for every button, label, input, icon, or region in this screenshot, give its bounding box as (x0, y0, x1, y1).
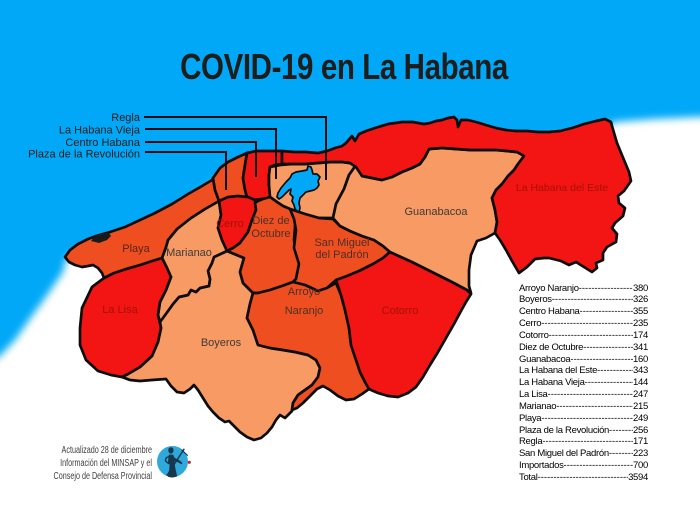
svg-text:Arroyo: Arroyo (288, 286, 320, 298)
svg-text:del Padrón: del Padrón (315, 249, 368, 261)
svg-text:Cerro: Cerro (216, 218, 244, 230)
svg-text:Centro Habana: Centro Habana (65, 137, 140, 149)
svg-text:Diez de: Diez de (252, 215, 289, 227)
svg-text:La Habana Vieja: La Habana Vieja (59, 125, 141, 137)
svg-text:Guanabacoa: Guanabacoa (405, 206, 469, 218)
svg-text:La Habana del Este: La Habana del Este (516, 182, 608, 194)
svg-text:Cotorro: Cotorro (382, 305, 419, 317)
svg-text:La Lisa: La Lisa (102, 304, 138, 316)
svg-text:Plaza de la Revolución: Plaza de la Revolución (28, 149, 140, 161)
svg-text:Marianao: Marianao (166, 247, 212, 259)
svg-text:Naranjo: Naranjo (285, 305, 324, 317)
svg-text:Playa: Playa (122, 243, 150, 255)
svg-text:Boyeros: Boyeros (201, 337, 242, 349)
svg-text:Octubre: Octubre (251, 228, 290, 240)
svg-text:San Miguel: San Miguel (314, 237, 369, 249)
svg-text:Regla: Regla (111, 112, 141, 124)
